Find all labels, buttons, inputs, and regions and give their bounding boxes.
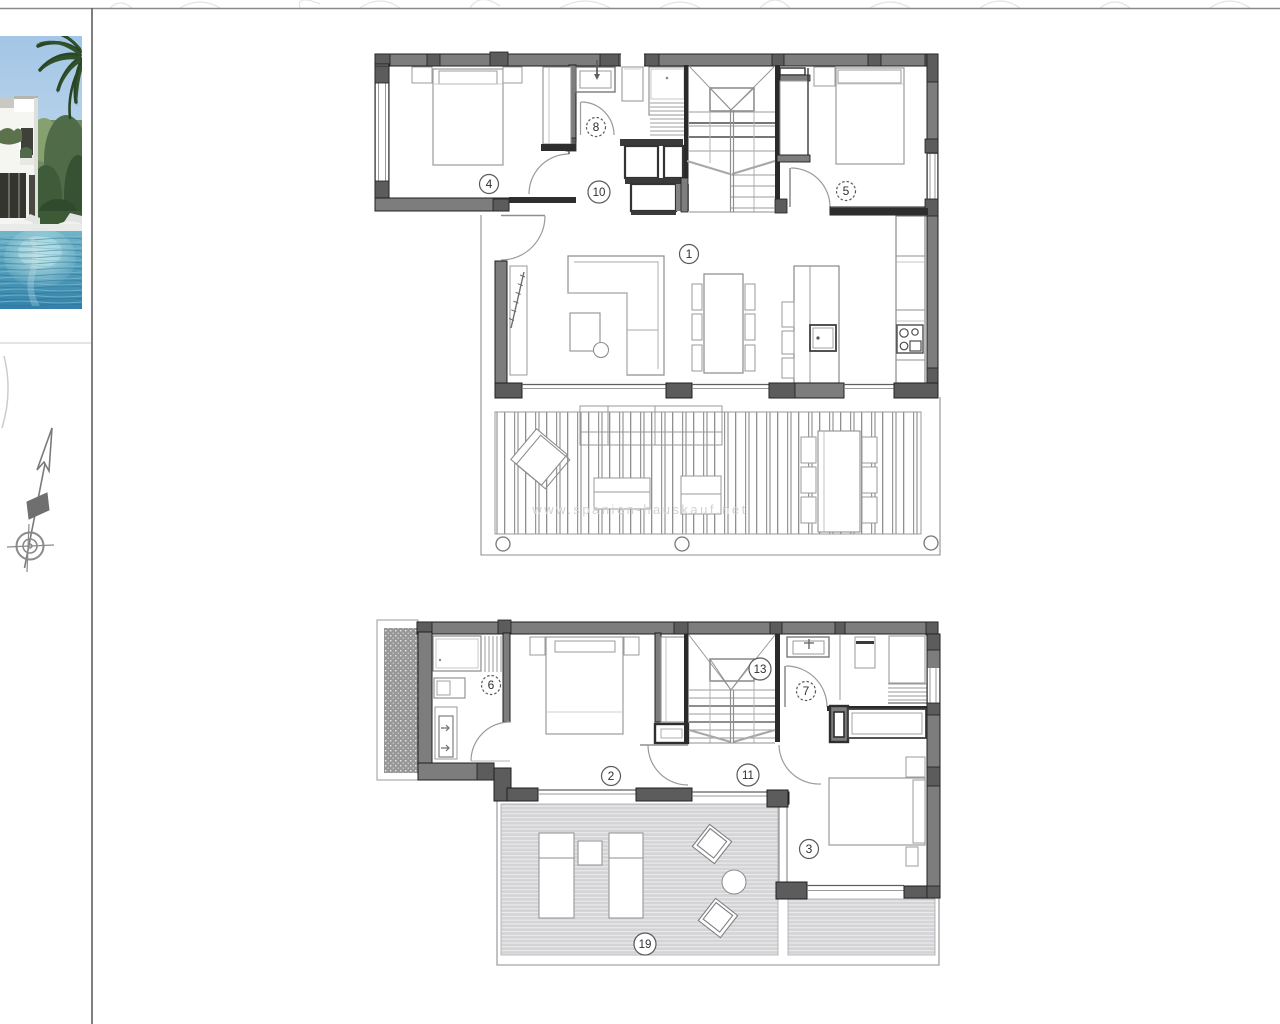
svg-text:1: 1 bbox=[686, 247, 693, 261]
svg-text:7: 7 bbox=[803, 684, 810, 698]
svg-text:5: 5 bbox=[843, 184, 850, 198]
svg-text:13: 13 bbox=[754, 664, 767, 676]
svg-text:4: 4 bbox=[486, 177, 493, 191]
svg-text:19: 19 bbox=[639, 939, 652, 951]
svg-text:3: 3 bbox=[806, 842, 813, 856]
svg-text:11: 11 bbox=[742, 770, 754, 782]
svg-text:6: 6 bbox=[488, 678, 495, 692]
svg-text:8: 8 bbox=[593, 120, 600, 134]
svg-text:2: 2 bbox=[608, 769, 615, 783]
svg-text:10: 10 bbox=[593, 187, 606, 199]
svg-text:www.spanien-hauskauf.net: www.spanien-hauskauf.net bbox=[531, 502, 747, 517]
